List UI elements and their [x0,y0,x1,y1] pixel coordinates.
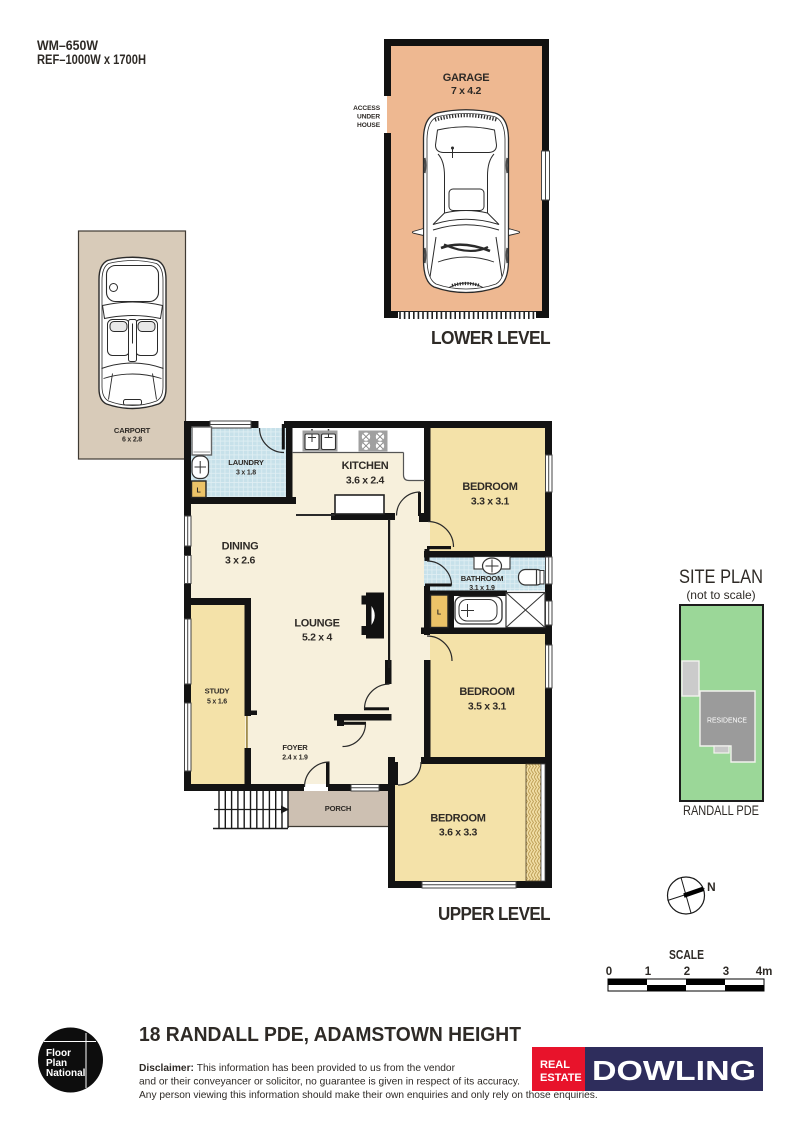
svg-text:SCALE: SCALE [669,948,704,962]
svg-text:L: L [197,488,202,495]
svg-text:DOWLING: DOWLING [592,1055,756,1086]
svg-text:4m: 4m [756,966,773,978]
svg-text:KITCHEN: KITCHEN [342,460,389,472]
svg-text:3.6 x 3.3: 3.6 x 3.3 [439,827,478,839]
svg-text:2: 2 [684,966,690,978]
svg-text:3.1 x 1.9: 3.1 x 1.9 [469,585,495,592]
svg-text:BEDROOM: BEDROOM [462,481,517,493]
svg-text:FOYER: FOYER [282,743,308,752]
svg-text:5 x 1.6: 5 x 1.6 [207,699,227,706]
svg-text:18 RANDALL PDE, ADAMSTOWN HEIG: 18 RANDALL PDE, ADAMSTOWN HEIGHT [139,1024,521,1046]
svg-text:3 x 2.6: 3 x 2.6 [225,555,255,567]
svg-text:STUDY: STUDY [205,687,230,696]
svg-text:2.4 x 1.9: 2.4 x 1.9 [282,755,308,762]
svg-text:3.5 x 3.1: 3.5 x 3.1 [468,701,507,713]
svg-text:PORCH: PORCH [325,804,351,813]
svg-text:HOUSE: HOUSE [357,122,381,129]
svg-text:BEDROOM: BEDROOM [430,813,485,825]
svg-text:3: 3 [723,966,729,978]
svg-text:0: 0 [606,966,612,978]
svg-text:3.6 x 2.4: 3.6 x 2.4 [346,475,385,487]
svg-text:UNDER: UNDER [357,114,380,121]
svg-text:LAUNDRY: LAUNDRY [228,458,264,467]
svg-text:BATHROOM: BATHROOM [461,574,504,583]
svg-text:and or their conveyancer or so: and or their conveyancer or solicitor, n… [139,1077,520,1088]
svg-text:LOWER LEVEL: LOWER LEVEL [431,328,551,348]
svg-text:ACCESS: ACCESS [353,105,381,112]
svg-text:3.3 x 3.1: 3.3 x 3.1 [471,496,510,508]
svg-text:GARAGE: GARAGE [443,72,489,84]
svg-text:6 x 2.8: 6 x 2.8 [122,437,142,444]
svg-text:L: L [437,610,442,617]
svg-text:RESIDENCE: RESIDENCE [707,716,747,725]
svg-text:UPPER LEVEL: UPPER LEVEL [438,904,551,924]
svg-text:LOUNGE: LOUNGE [294,618,339,630]
svg-text:ESTATE: ESTATE [540,1072,582,1084]
svg-text:7 x 4.2: 7 x 4.2 [451,85,481,97]
svg-text:REAL: REAL [540,1059,570,1071]
svg-text:BEDROOM: BEDROOM [459,686,514,698]
svg-text:1: 1 [645,966,652,978]
svg-text:National: National [46,1068,86,1079]
svg-text:Any person viewing this inform: Any person viewing this information shou… [139,1090,598,1101]
svg-text:3 x 1.8: 3 x 1.8 [236,470,256,477]
svg-text:SITE PLAN: SITE PLAN [679,567,763,588]
svg-text:Disclaimer: This information h: Disclaimer: This information has been pr… [139,1063,456,1074]
svg-text:WM–650W: WM–650W [37,38,98,53]
svg-text:N: N [707,880,716,894]
svg-text:REF–1000W x 1700H: REF–1000W x 1700H [37,52,146,67]
svg-text:(not to scale): (not to scale) [686,588,755,602]
svg-text:5.2 x 4: 5.2 x 4 [302,632,332,644]
svg-text:CARPORT: CARPORT [114,426,151,435]
svg-text:DINING: DINING [222,541,259,553]
svg-text:RANDALL PDE: RANDALL PDE [683,802,759,818]
